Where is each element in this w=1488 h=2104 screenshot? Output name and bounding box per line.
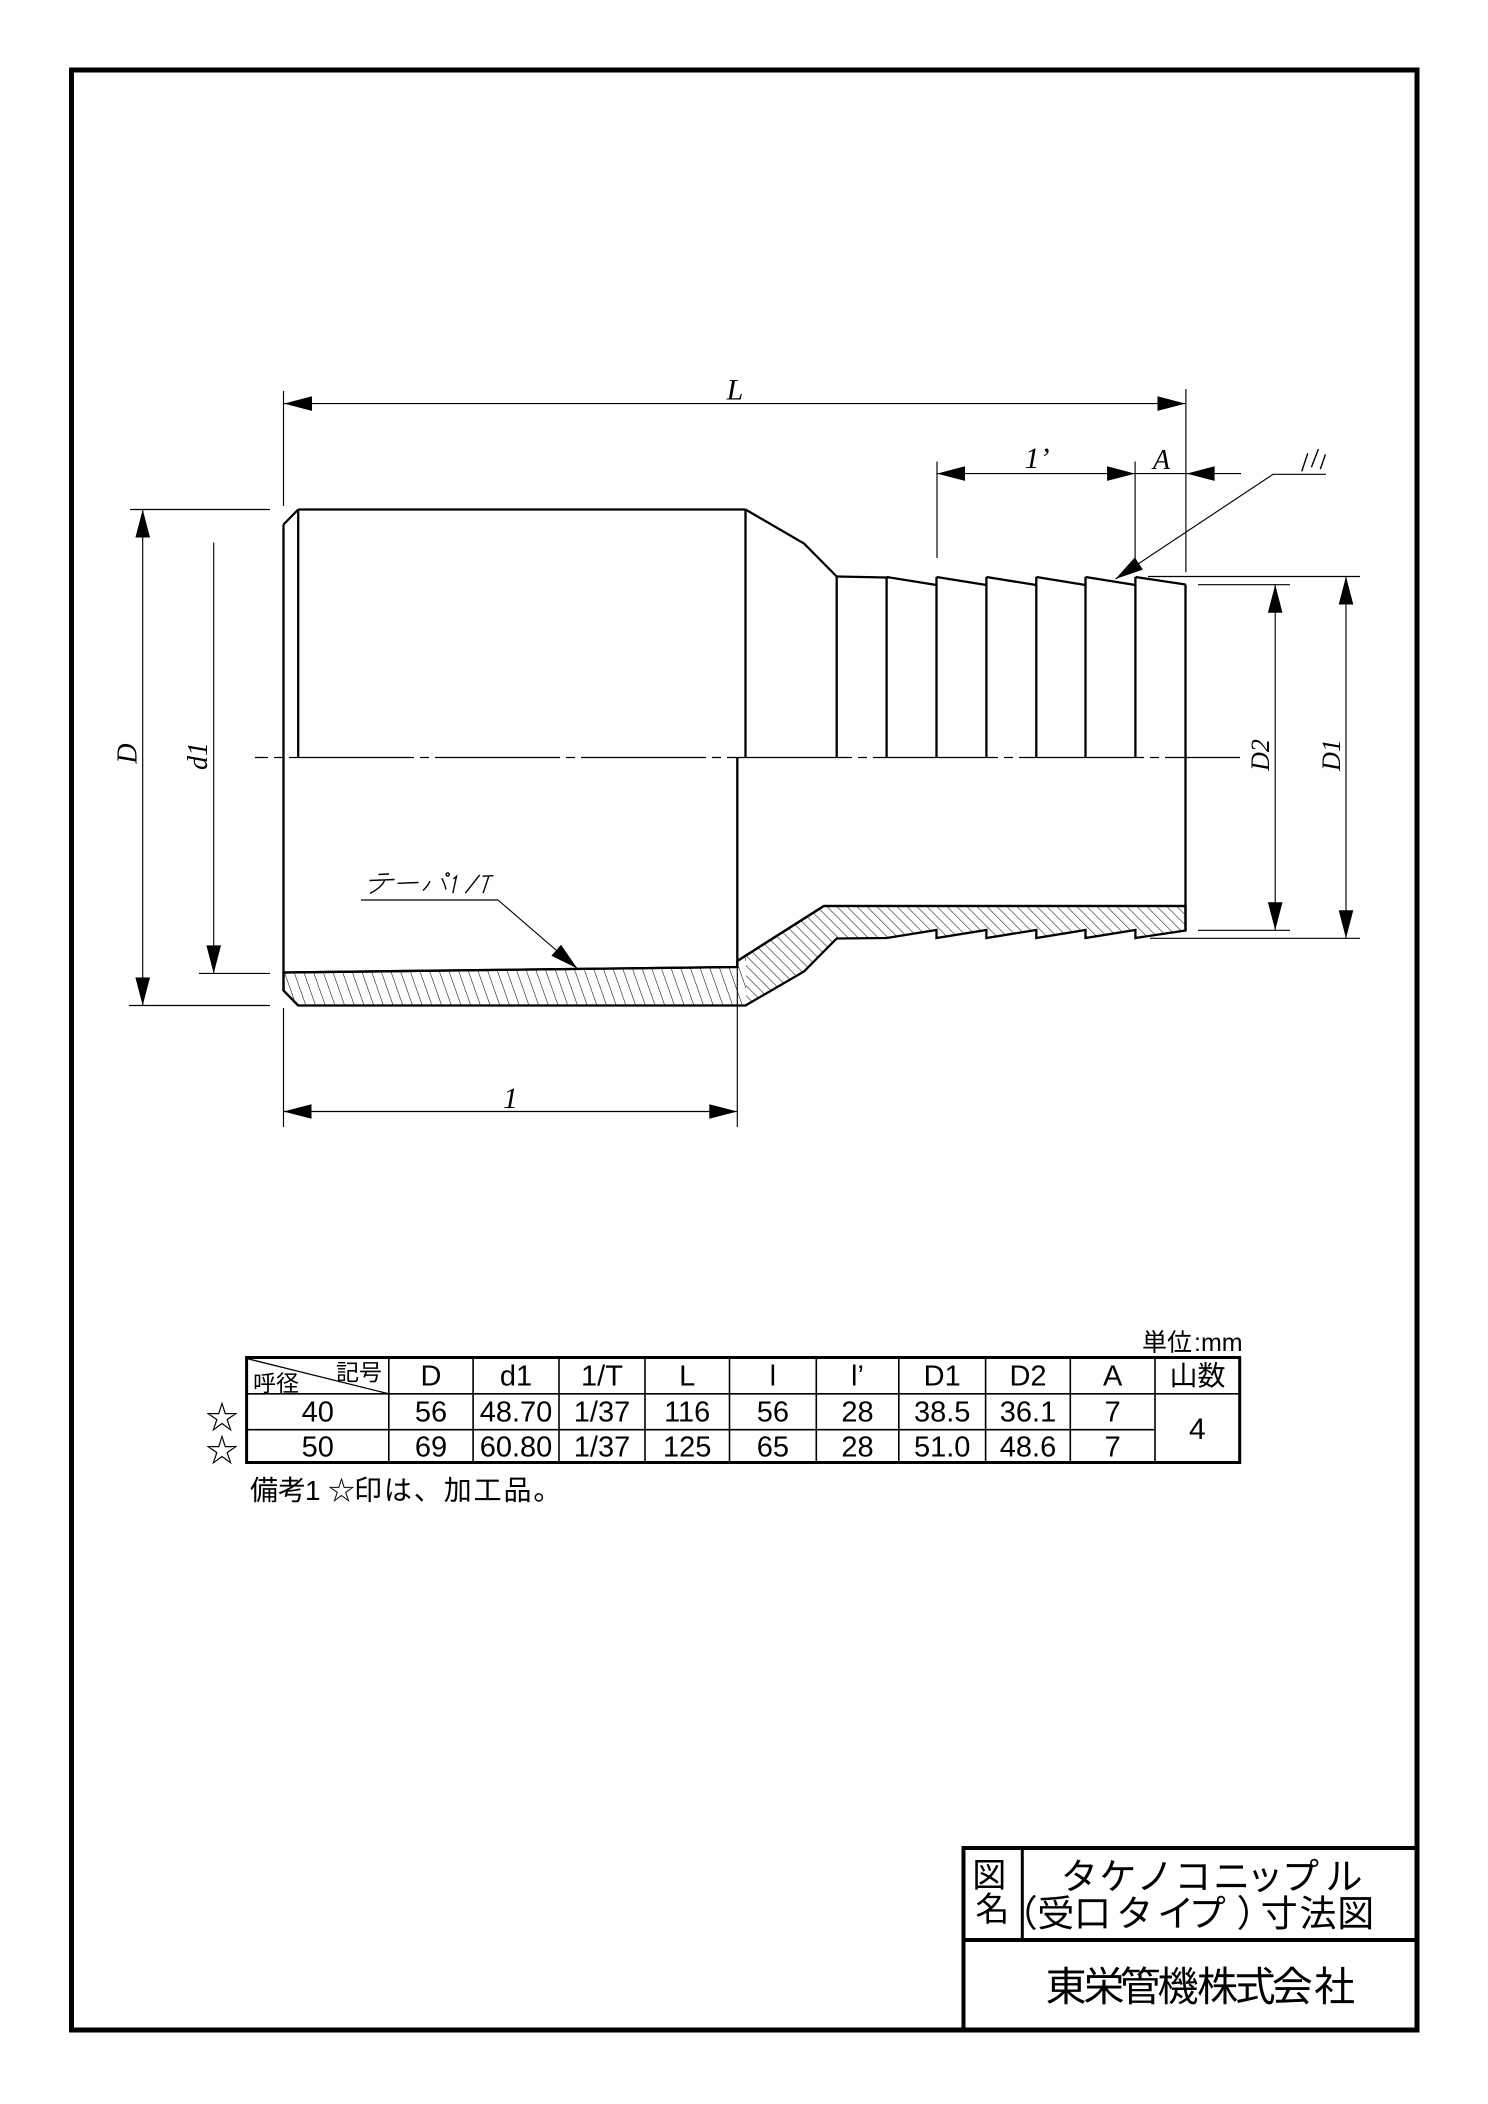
svg-text:D1: D1: [1317, 739, 1346, 772]
svg-text:d1: d1: [500, 1361, 532, 1393]
svg-text:L: L: [726, 374, 744, 407]
svg-text:60.80: 60.80: [480, 1432, 553, 1464]
svg-text:A: A: [1151, 445, 1171, 476]
svg-text:116: 116: [664, 1397, 710, 1429]
svg-text::mm: :mm: [1194, 1329, 1243, 1357]
svg-text:40: 40: [302, 1397, 334, 1429]
svg-text:125: 125: [663, 1432, 711, 1464]
svg-text:D2: D2: [1009, 1361, 1046, 1393]
svg-text:7: 7: [1105, 1432, 1121, 1464]
svg-text:1/37: 1/37: [574, 1432, 630, 1464]
svg-text:7: 7: [1105, 1397, 1121, 1429]
svg-text:28: 28: [841, 1432, 873, 1464]
svg-text:d1: d1: [183, 742, 214, 770]
svg-text:36.1: 36.1: [1000, 1397, 1056, 1429]
svg-text:56: 56: [415, 1397, 447, 1429]
svg-text:D2: D2: [1246, 739, 1275, 772]
svg-text:D: D: [421, 1361, 442, 1393]
svg-text:l’: l’: [851, 1361, 864, 1393]
svg-text:l: l: [770, 1361, 776, 1393]
svg-text:4: 4: [1189, 1413, 1206, 1446]
svg-text:48.6: 48.6: [1000, 1432, 1056, 1464]
svg-text:A: A: [1103, 1361, 1123, 1393]
svg-text:48.70: 48.70: [480, 1397, 553, 1429]
svg-text:D: D: [113, 743, 144, 764]
svg-text:51.0: 51.0: [914, 1432, 970, 1464]
svg-text:L: L: [679, 1361, 695, 1393]
svg-text:56: 56: [757, 1397, 789, 1429]
svg-text:38.5: 38.5: [914, 1397, 970, 1429]
svg-text:69: 69: [415, 1432, 447, 1464]
svg-text:1: 1: [503, 1082, 518, 1115]
svg-text:D1: D1: [924, 1361, 961, 1393]
svg-text:50: 50: [302, 1432, 334, 1464]
svg-text:65: 65: [757, 1432, 789, 1464]
svg-text:1: 1: [305, 1475, 321, 1506]
svg-text:28: 28: [841, 1397, 873, 1429]
svg-text:1/T: 1/T: [581, 1361, 623, 1393]
svg-text:1’: 1’: [1025, 442, 1050, 475]
svg-text:1/37: 1/37: [574, 1397, 630, 1429]
